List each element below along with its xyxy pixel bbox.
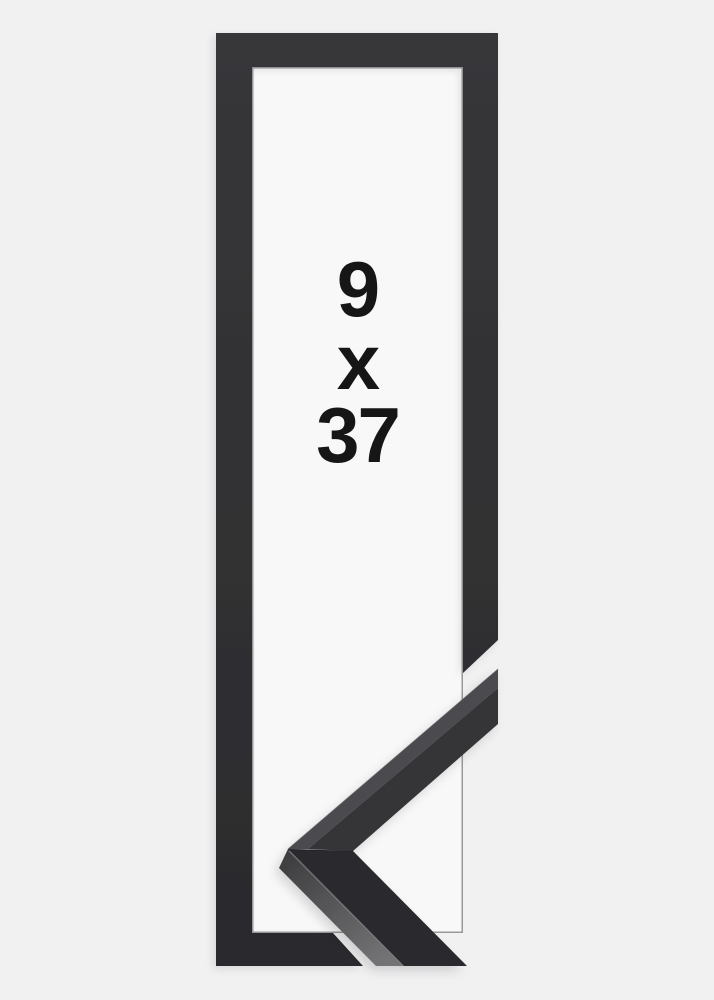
size-width-label: 9	[252, 253, 463, 326]
size-separator-label: x	[252, 326, 463, 399]
size-label: 9 x 37	[252, 253, 463, 472]
product-image-canvas: 9 x 37	[0, 0, 714, 1000]
size-height-label: 37	[252, 399, 463, 472]
frame-illustration	[0, 0, 714, 1000]
